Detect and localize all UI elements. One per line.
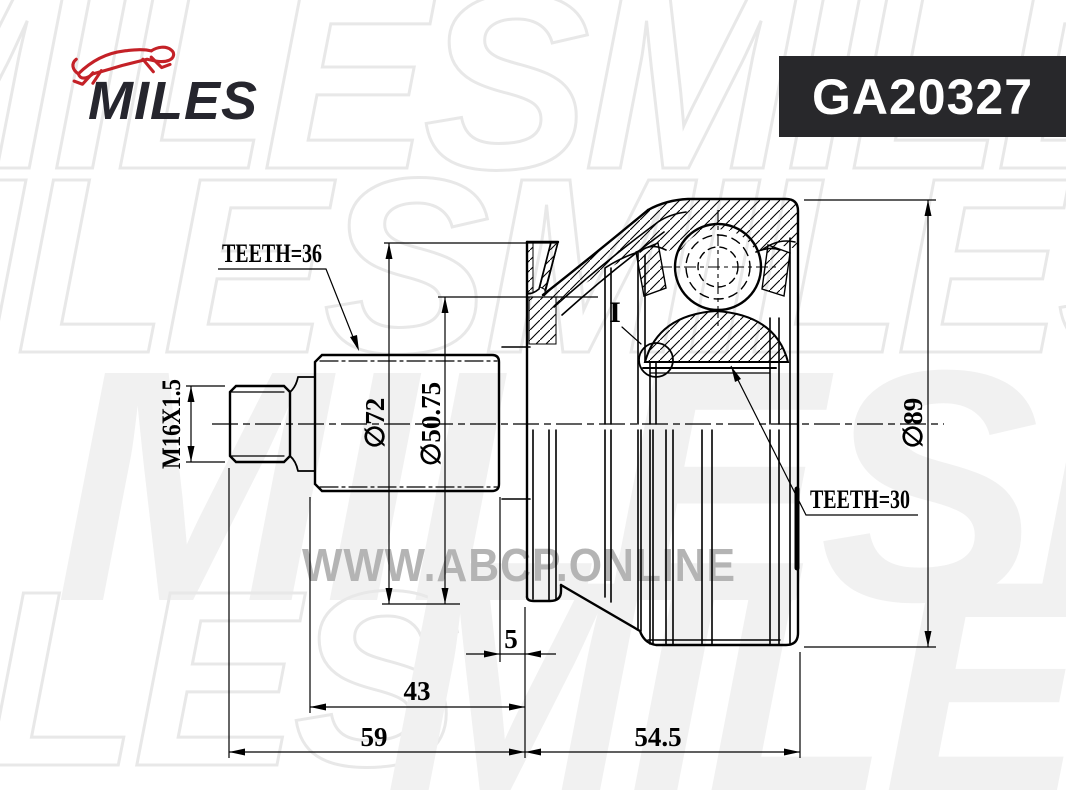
dim-label-dia5075: ∅50.75 (416, 382, 446, 466)
dim-label-thread: M16X1.5 (157, 379, 186, 469)
mouth-wall-hatch (529, 297, 556, 344)
logo-wordmark: MILES (88, 70, 258, 132)
page: MILESMILE MILESMILES MILESM MILES MILESM… (0, 0, 1066, 800)
url-watermark: WWW.ABCP.ONLINE (302, 539, 736, 591)
dim-label-545: 54.5 (634, 722, 681, 752)
miles-logo: MILES (64, 42, 324, 142)
dim-label-teeth36: TEETH=36 (222, 239, 322, 268)
part-number: GA20327 (812, 68, 1033, 126)
dim-label-dia72: ∅72 (360, 398, 390, 449)
dim-label-dia89: ∅89 (898, 398, 928, 449)
dim-label-59: 59 (361, 722, 388, 752)
dim-label-teeth30: TEETH=30 (810, 485, 910, 514)
dim-label-43: 43 (404, 676, 431, 706)
detail-marker-label: I (609, 296, 621, 329)
part-number-badge: GA20327 (779, 56, 1066, 137)
dim-label-5: 5 (504, 624, 518, 654)
